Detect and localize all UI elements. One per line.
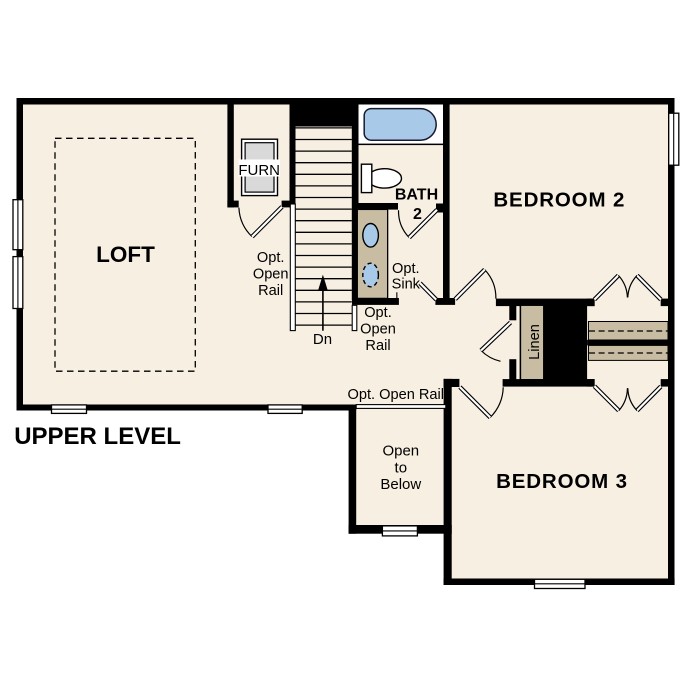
svg-text:Dn: Dn bbox=[313, 331, 332, 348]
svg-text:LOFT: LOFT bbox=[96, 242, 155, 267]
svg-text:FURN: FURN bbox=[238, 162, 280, 179]
svg-text:to: to bbox=[395, 459, 408, 476]
svg-text:Opt. Open Rail: Opt. Open Rail bbox=[348, 387, 445, 403]
svg-text:Rail: Rail bbox=[258, 283, 283, 299]
svg-text:BEDROOM 2: BEDROOM 2 bbox=[493, 189, 625, 212]
svg-text:Opt.: Opt. bbox=[364, 305, 392, 321]
svg-text:Opt.: Opt. bbox=[392, 261, 420, 277]
svg-text:Open: Open bbox=[253, 266, 289, 282]
svg-text:Rail: Rail bbox=[365, 338, 390, 354]
svg-text:Below: Below bbox=[380, 476, 421, 493]
svg-text:Open: Open bbox=[360, 322, 396, 338]
svg-text:BEDROOM 3: BEDROOM 3 bbox=[496, 470, 628, 493]
svg-text:Sink: Sink bbox=[392, 277, 421, 293]
svg-text:BATH: BATH bbox=[395, 186, 438, 203]
svg-text:2: 2 bbox=[413, 206, 422, 223]
svg-text:Open: Open bbox=[382, 442, 419, 459]
svg-text:Opt.: Opt. bbox=[257, 250, 285, 266]
svg-text:Linen: Linen bbox=[527, 324, 543, 360]
svg-text:UPPER LEVEL: UPPER LEVEL bbox=[14, 423, 181, 450]
